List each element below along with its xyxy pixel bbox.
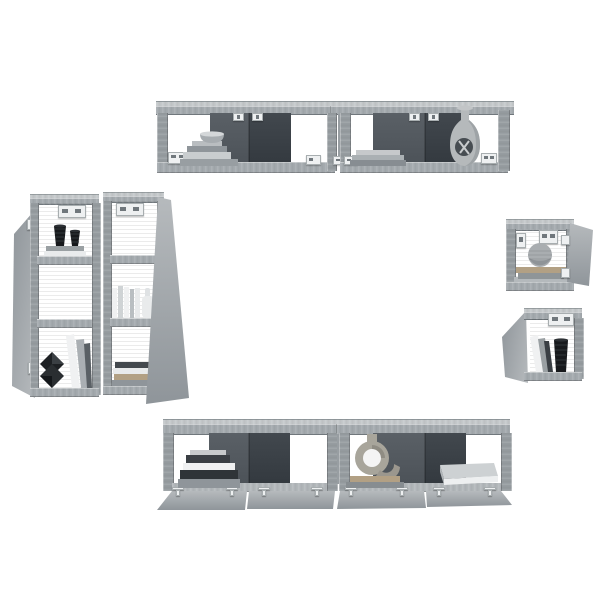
door-hinge [172,487,184,496]
top-board-seam [336,424,337,433]
ring-sculpture-decor [346,434,404,488]
product-image [0,0,600,600]
bottom-wall-cabinet [0,0,600,600]
module2-right-wall [501,433,512,491]
book [186,455,230,463]
door-hinge [226,487,238,496]
book [346,482,404,488]
door-hinge [396,487,408,496]
module2-partition-edge [424,433,426,485]
door-hinge [345,487,357,496]
ring-knob [367,434,377,442]
book [183,463,235,470]
module1-partition-edge [248,433,250,485]
book-stack-decor [178,450,246,488]
door-hinge [258,487,270,496]
ring-hole [363,449,381,467]
door-hinge [484,487,496,496]
door-hinge [433,487,445,496]
book [190,450,226,455]
flat-box-decor [432,463,498,488]
door-hinge [311,487,323,496]
book [350,476,400,482]
book [178,479,240,488]
module1-back-panel-right [249,433,290,485]
book [180,470,238,479]
